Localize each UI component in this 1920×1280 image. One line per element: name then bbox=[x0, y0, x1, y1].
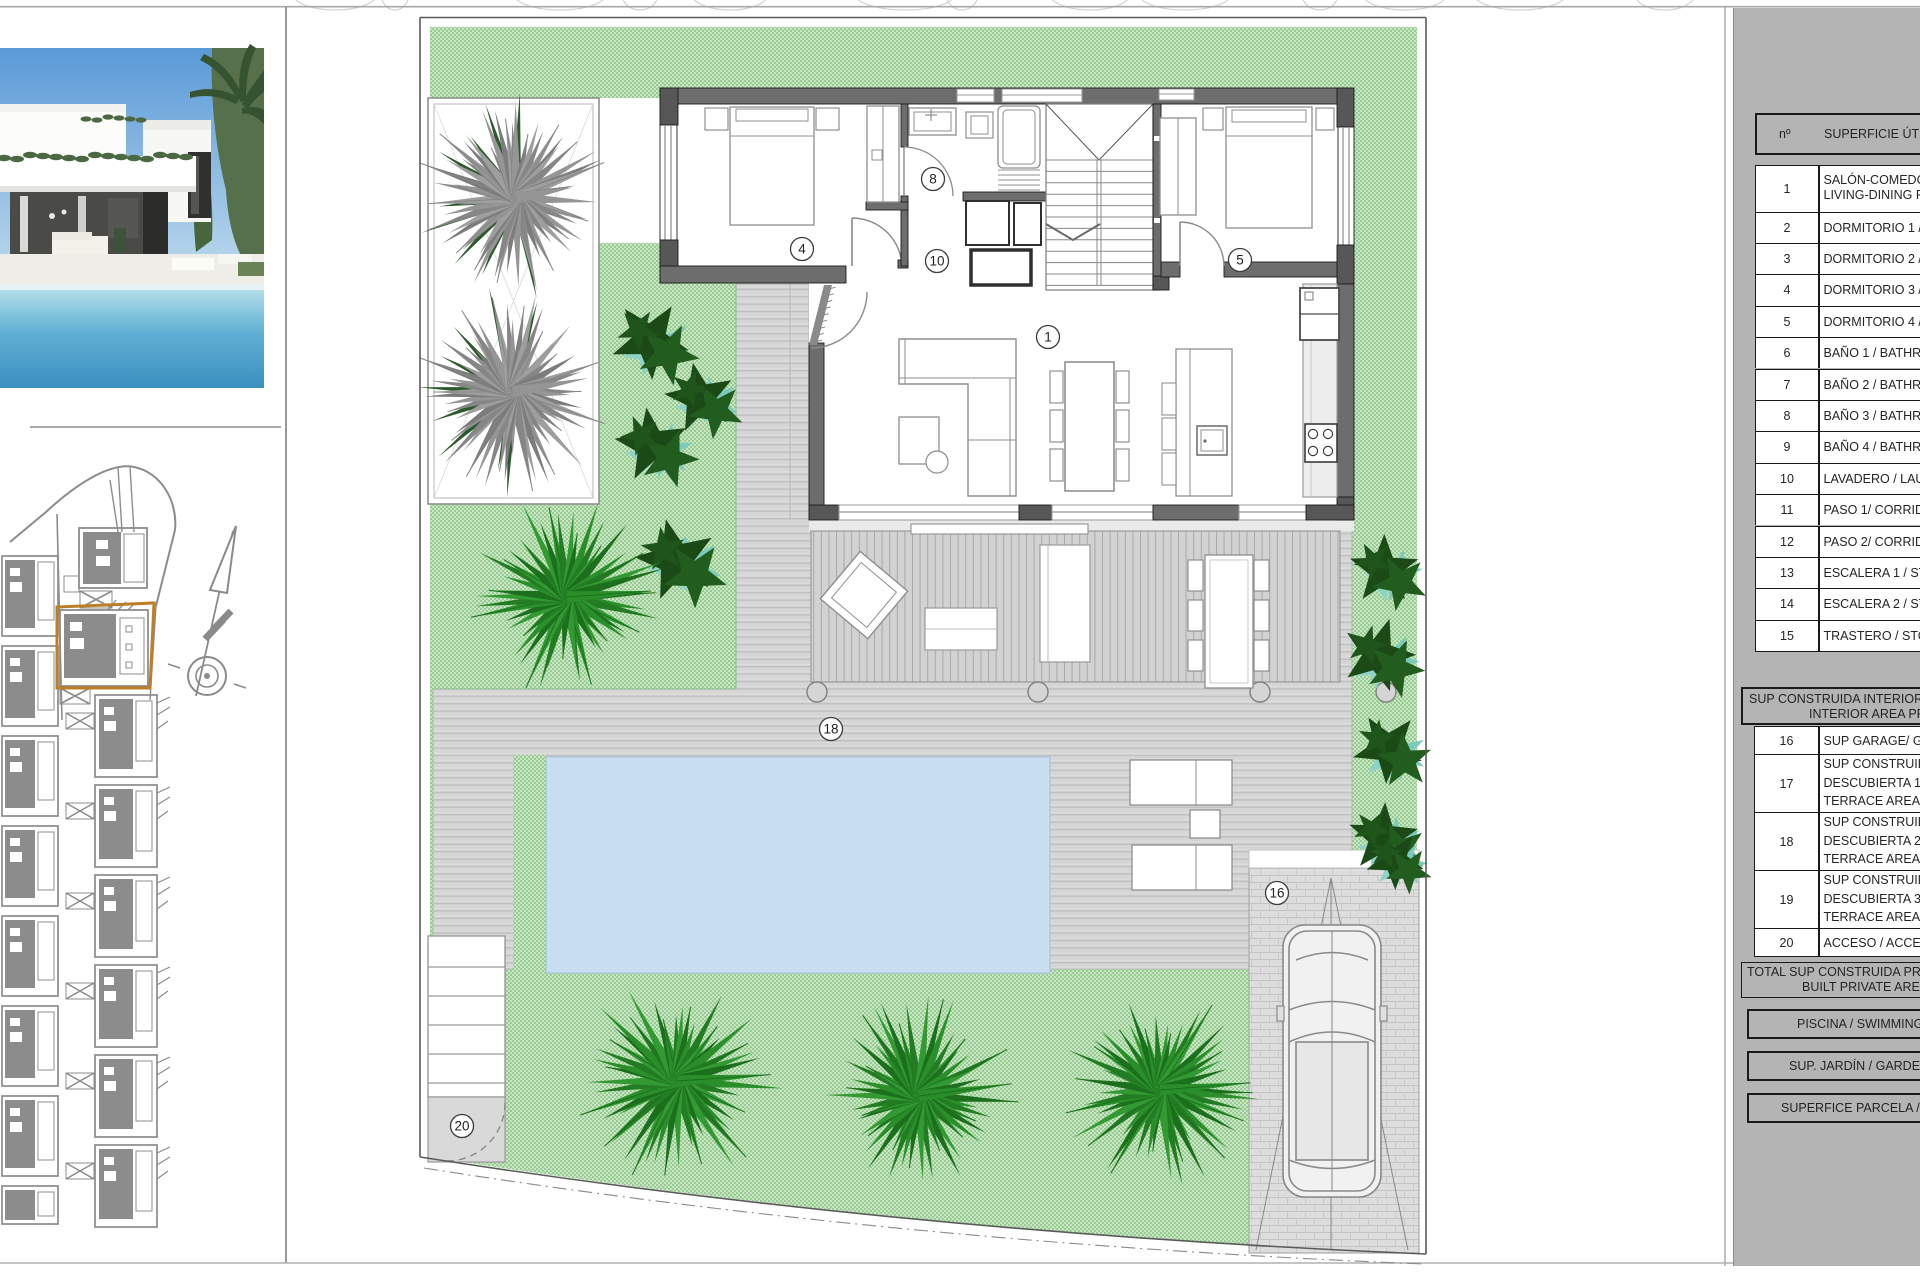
svg-text:10: 10 bbox=[929, 254, 944, 269]
svg-text:5: 5 bbox=[1236, 253, 1244, 268]
svg-text:16: 16 bbox=[1269, 886, 1284, 901]
svg-text:18: 18 bbox=[823, 722, 838, 737]
svg-text:4: 4 bbox=[798, 242, 806, 257]
svg-text:8: 8 bbox=[929, 172, 937, 187]
svg-text:20: 20 bbox=[454, 1119, 469, 1134]
svg-text:1: 1 bbox=[1044, 330, 1052, 345]
